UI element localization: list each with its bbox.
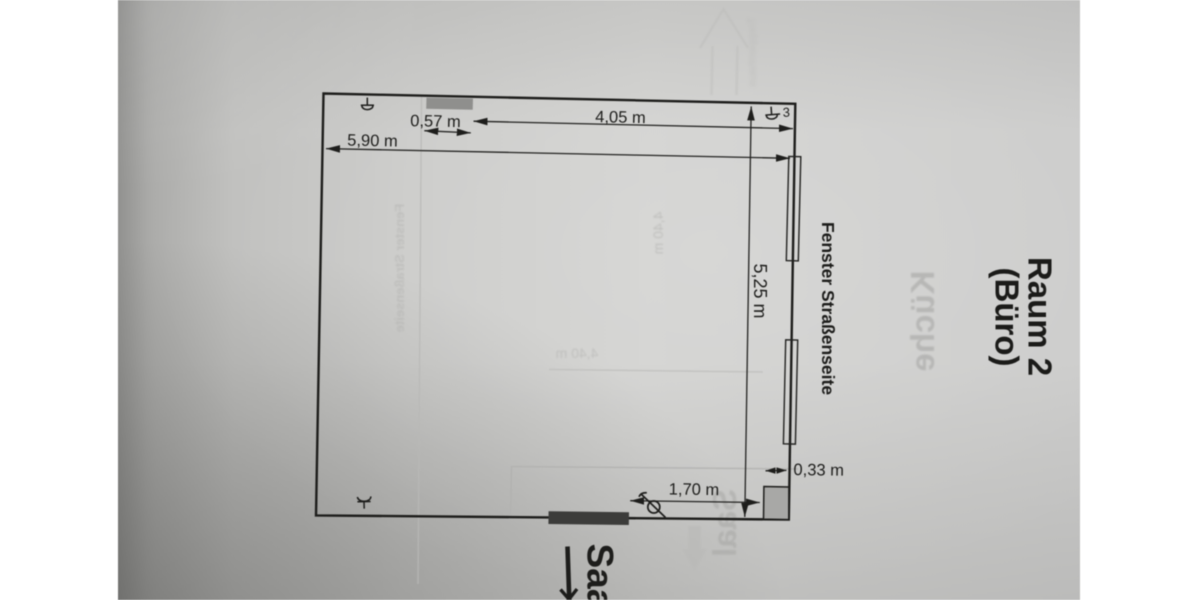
svg-text:Saal: Saal (580, 544, 621, 600)
svg-text:Treppenhaus: Treppenhaus (745, 17, 759, 87)
svg-text:5,90 m: 5,90 m (347, 131, 398, 150)
svg-text:(Büro): (Büro) (989, 268, 1026, 367)
svg-text:Saal: Saal (706, 489, 743, 557)
svg-text:4,05 m: 4,05 m (595, 108, 646, 127)
svg-text:Raum 2: Raum 2 (1022, 257, 1059, 376)
svg-text:3: 3 (783, 105, 791, 120)
svg-text:1,70 m: 1,70 m (669, 480, 720, 499)
svg-text:Fenster Straßenseite: Fenster Straßenseite (818, 222, 838, 395)
svg-text:4,40 m: 4,40 m (650, 212, 666, 255)
svg-text:0,57 m: 0,57 m (410, 112, 461, 131)
svg-text:4,40 m: 4,40 m (556, 345, 599, 361)
svg-text:5,25 m: 5,25 m (750, 263, 770, 318)
svg-text:Fenster Straßenseite: Fenster Straßenseite (392, 204, 407, 333)
svg-text:Küche: Küche (904, 271, 941, 372)
svg-text:0,33 m: 0,33 m (793, 461, 844, 480)
